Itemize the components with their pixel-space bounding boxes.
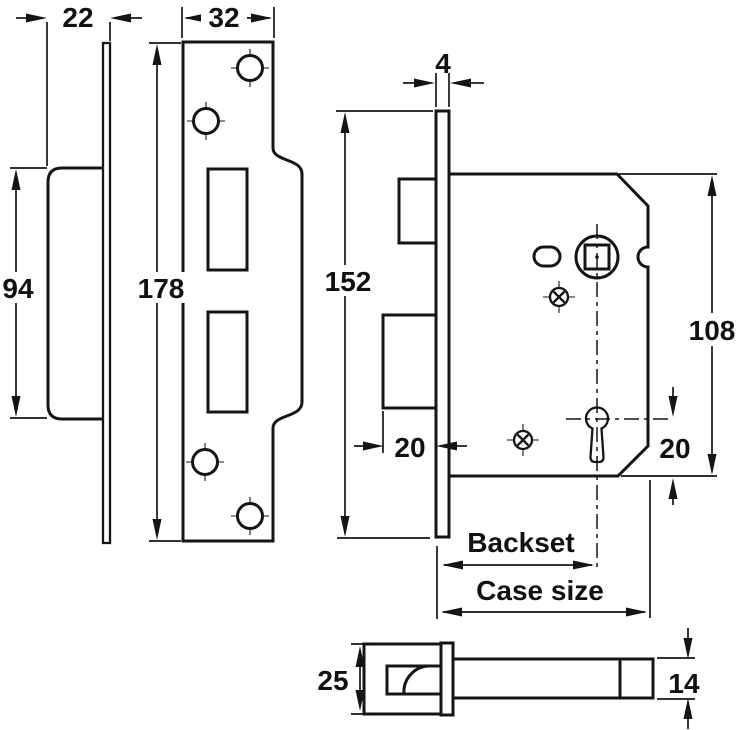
faceplate-side-outline	[103, 43, 110, 543]
lock-case-group	[383, 111, 672, 567]
dim-14: 14	[657, 628, 700, 729]
lock-diagram-canvas: 22 32 94	[0, 0, 738, 730]
dim-4-label: 4	[435, 48, 451, 79]
latch-bolt	[399, 179, 436, 243]
lock-body-bar	[453, 659, 653, 698]
dim-20-keyhole-label: 20	[659, 433, 690, 464]
dim-32-label: 32	[208, 2, 239, 33]
faceplate-front-outline	[436, 111, 449, 537]
strike-plate-group	[183, 42, 302, 541]
dim-32: 32	[182, 2, 274, 38]
lock-case-outline	[449, 174, 648, 476]
bolt-detail-group	[364, 643, 653, 715]
oval-hole	[534, 247, 560, 266]
dim-14-label: 14	[668, 668, 700, 699]
case-size-label: Case size	[476, 575, 604, 606]
lock-technical-drawing-page: 22 32 94	[0, 0, 738, 730]
dim-20-keyhole: 20	[659, 387, 690, 505]
faceplate-section-bar	[441, 643, 453, 715]
dim-178-label: 178	[138, 273, 185, 304]
backset-label: Backset	[467, 527, 574, 558]
dim-22-label: 22	[62, 2, 93, 33]
dim-178: 178	[137, 43, 185, 541]
dim-4: 4	[403, 48, 484, 107]
strike-cutout-lower	[208, 312, 247, 412]
dim-108-label: 108	[689, 315, 736, 346]
dim-22: 22	[16, 2, 142, 166]
strike-cutout-upper	[208, 169, 247, 270]
deadbolt	[383, 315, 436, 408]
dim-20-bolt-label: 20	[394, 432, 425, 463]
dim-152-label: 152	[325, 266, 372, 297]
dim-94: 94	[0, 168, 47, 418]
dim-94-label: 94	[2, 273, 34, 304]
side-view-group	[48, 43, 110, 543]
lock-body-side-outline	[48, 168, 103, 419]
dim-25-label: 25	[317, 665, 348, 696]
